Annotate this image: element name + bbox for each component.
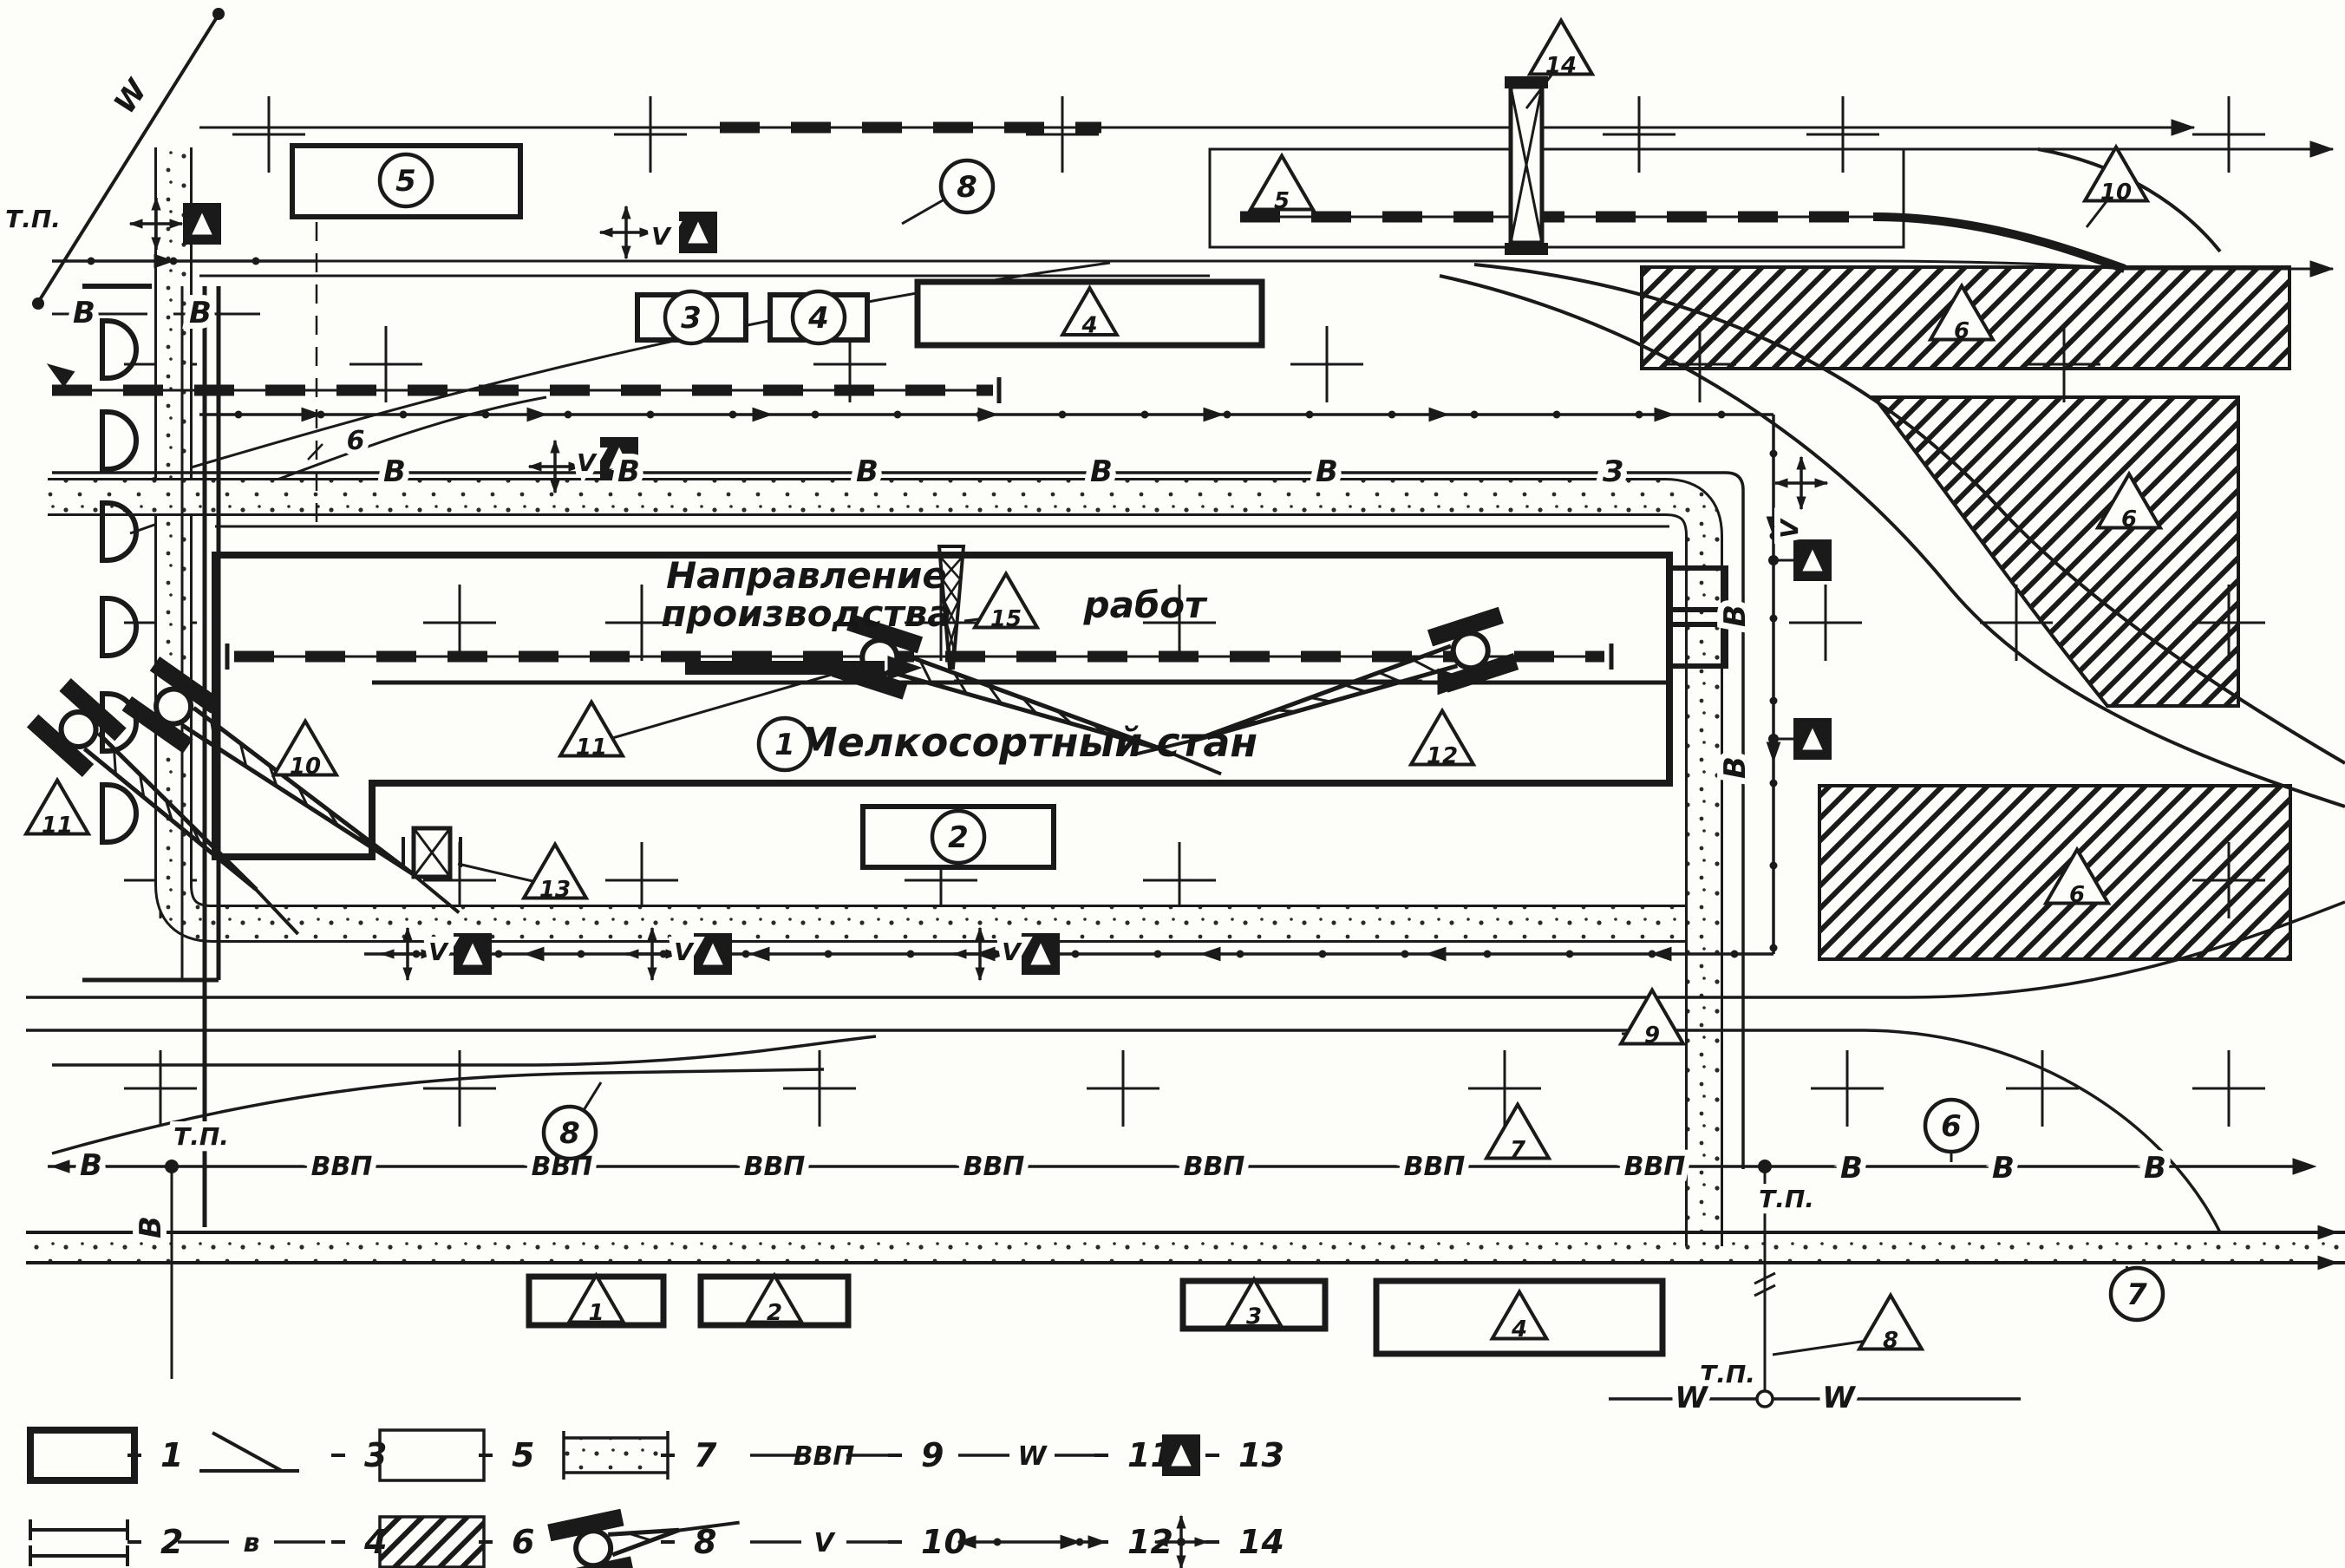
utility-line-label: В xyxy=(1316,454,1338,489)
utility-line-label: W xyxy=(1675,1381,1708,1415)
utility-line-label: ВВП xyxy=(1404,1152,1466,1182)
boxed-callout-number: 3 xyxy=(1246,1304,1262,1330)
crawler-crane-icon xyxy=(832,614,1233,800)
utility-line-label: В xyxy=(80,1148,102,1183)
line-arrow-icon xyxy=(1061,1535,1080,1548)
legend-building-thin-icon xyxy=(380,1430,484,1480)
legend-road-icon xyxy=(564,1438,668,1473)
utility-line-label: V xyxy=(577,448,598,477)
utility-line-label: В xyxy=(2144,1151,2166,1186)
circle-callout-number: 3 xyxy=(681,301,702,336)
axis-transfer-icon xyxy=(1177,1538,1186,1546)
line-dot-icon xyxy=(1401,951,1409,958)
line-dot-icon xyxy=(1718,411,1726,419)
triangle-callout-number: 13 xyxy=(539,877,571,903)
line-dot-icon xyxy=(1566,951,1574,958)
arrow-head-icon xyxy=(2293,1159,2316,1174)
line-dot-icon xyxy=(1770,780,1778,787)
line-dot-icon xyxy=(1770,862,1778,870)
utility-line-label: ВВП xyxy=(1184,1152,1245,1182)
legend-number: 9 xyxy=(921,1436,944,1474)
left-complex-bay xyxy=(102,412,136,469)
line-arrow-icon xyxy=(978,408,997,421)
direction-label: работ xyxy=(1083,584,1209,626)
utility-line-label: V xyxy=(1002,938,1022,966)
utility-line-label: 6 xyxy=(347,426,365,456)
axis-transfer-icon xyxy=(976,968,984,980)
line-node-dot xyxy=(1768,555,1779,565)
stroygenplan-drawing: НаправлениепроизводстваработМелкосортный… xyxy=(0,0,2345,1568)
line-node-dot xyxy=(1768,734,1779,744)
line-dot-icon xyxy=(1319,951,1327,958)
legend-number: 13 xyxy=(1238,1436,1284,1474)
line-dot-icon xyxy=(1636,411,1643,419)
line-arrow-icon xyxy=(1767,742,1780,761)
line-node-circle xyxy=(1757,1391,1773,1407)
hatched-building xyxy=(1819,786,2290,959)
utility-line-label: Т.П. xyxy=(1759,1185,1814,1213)
axis-transfer-icon xyxy=(954,950,966,958)
utility-line-label: Т.П. xyxy=(5,205,61,233)
utility-line-label: Т.П. xyxy=(173,1122,229,1151)
line-dot-icon xyxy=(565,411,572,419)
utility-line-label: W xyxy=(108,73,155,121)
left-complex-bay xyxy=(102,321,136,378)
legend-line-letter: ВВП xyxy=(794,1441,855,1472)
gantry-icon xyxy=(1505,243,1548,255)
line-dot-icon xyxy=(742,951,750,958)
line-dot-icon xyxy=(1731,951,1739,958)
road-exit-arrow xyxy=(42,356,75,386)
road-stipple xyxy=(26,1235,2345,1261)
line-dot-icon xyxy=(1141,411,1149,419)
line-dot-icon xyxy=(894,411,902,419)
legend-number: 3 xyxy=(364,1436,387,1474)
axis-transfer-icon xyxy=(1775,479,1787,487)
utility-line-label: З xyxy=(1602,454,1623,489)
mill-name-label: Мелкосортный стан xyxy=(798,719,1257,766)
axis-transfer-icon xyxy=(648,968,656,980)
road-line xyxy=(52,1069,824,1153)
line-arrow-icon xyxy=(527,408,546,421)
utility-line-label: W xyxy=(1822,1381,1856,1415)
axis-transfer-icon xyxy=(640,228,652,237)
line-arrow-icon xyxy=(1652,947,1671,960)
legend-line-letter: W xyxy=(1017,1441,1048,1472)
line-arrow-icon xyxy=(1429,408,1448,421)
axis-transfer-icon xyxy=(1177,1556,1186,1568)
utility-line-label: В xyxy=(1840,1151,1863,1186)
line-dot-icon xyxy=(578,951,585,958)
axis-transfer-icon xyxy=(622,206,630,219)
triangle-callout-number: 10 xyxy=(290,754,321,780)
utility-line-label: V xyxy=(674,938,695,966)
line-dot-icon xyxy=(1484,951,1492,958)
line-dot-icon xyxy=(1154,951,1162,958)
line-dot-icon xyxy=(1388,411,1396,419)
axis-transfer-icon xyxy=(1195,1538,1207,1546)
axis-transfer-icon xyxy=(529,462,541,471)
utility-line-label: V xyxy=(651,222,672,251)
line-dot-icon xyxy=(1224,411,1231,419)
line-arrow-icon xyxy=(750,947,769,960)
line-arrow-icon xyxy=(1201,947,1220,960)
line-dot-icon xyxy=(88,258,95,265)
line-node-dot xyxy=(212,8,225,20)
legend-number: 5 xyxy=(512,1436,534,1474)
axis-transfer-icon xyxy=(130,219,142,228)
arrow-head-icon xyxy=(52,1160,69,1173)
left-complex-bay xyxy=(102,598,136,656)
line-dot-icon xyxy=(400,411,408,419)
line-arrow-icon xyxy=(753,408,772,421)
boxed-callout-number: 4 xyxy=(1081,313,1097,339)
temporary-structure-outline xyxy=(1210,149,1904,247)
utility-line-label: В xyxy=(73,296,95,330)
circle-callout-number: 4 xyxy=(807,301,829,336)
utility-line-label: В xyxy=(189,296,212,330)
circle-callout-number: 6 xyxy=(1941,1109,1962,1144)
axis-transfer-icon xyxy=(1177,1516,1186,1528)
line-arrow-icon xyxy=(1204,408,1223,421)
axis-transfer-icon xyxy=(600,228,612,237)
callout-leader xyxy=(308,444,323,460)
triangle-callout-number: 8 xyxy=(1883,1328,1898,1354)
line-arrow-icon xyxy=(302,408,321,421)
line-dot-icon xyxy=(1306,411,1314,419)
axis-transfer-icon xyxy=(626,950,638,958)
triangle-callout-number: 9 xyxy=(1644,1022,1660,1049)
utility-line-label: V xyxy=(1775,518,1804,539)
arrow-head-icon xyxy=(2310,141,2333,157)
line-dot-icon xyxy=(252,258,260,265)
line-dot-icon xyxy=(1770,450,1778,458)
line-dot-icon xyxy=(647,411,655,419)
utility-line-label: В xyxy=(383,454,406,489)
utility-line-label: В xyxy=(1090,454,1113,489)
circle-callout-number: 8 xyxy=(559,1116,580,1151)
triangle-callout-number: 14 xyxy=(1545,53,1577,79)
line-dot-icon xyxy=(825,951,833,958)
line-dot-icon xyxy=(482,411,490,419)
circle-callout-number: 8 xyxy=(957,170,977,205)
legend-number: 1 xyxy=(160,1436,183,1474)
utility-line-label: Т.П. xyxy=(1700,1360,1755,1388)
circle-callout-number: 5 xyxy=(395,164,416,199)
line-dot-icon xyxy=(1770,697,1778,705)
utility-line-label: V xyxy=(428,938,449,966)
triangle-callout-number: 10 xyxy=(2100,180,2132,206)
legend-number: 7 xyxy=(694,1436,717,1474)
direction-label: производства xyxy=(661,592,951,635)
direction-label: Направление xyxy=(666,554,947,597)
circle-callout-number: 7 xyxy=(2126,1277,2147,1312)
triangle-callout-number: 12 xyxy=(1427,743,1458,769)
line-dot-icon xyxy=(1770,615,1778,623)
triangle-callout-number: 7 xyxy=(1510,1137,1526,1163)
legend-hatched-icon xyxy=(380,1517,484,1567)
water-line-w xyxy=(35,10,221,308)
axis-transfer-icon xyxy=(1797,457,1806,469)
triangle-callout-number: 15 xyxy=(990,606,1022,632)
axis-transfer-icon xyxy=(1797,497,1806,509)
line-dot-icon xyxy=(1237,951,1244,958)
triangle-callout-number: 6 xyxy=(2121,506,2137,532)
triangle-callout-number: 11 xyxy=(42,813,73,839)
line-dot-icon xyxy=(907,951,915,958)
arrow-head-icon xyxy=(2172,120,2194,135)
scanned-drawing-page: НаправлениепроизводстваработМелкосортный… xyxy=(0,0,2345,1568)
axis-transfer-icon xyxy=(622,246,630,258)
line-dot-icon xyxy=(1072,951,1080,958)
circle-callout-number: 1 xyxy=(774,728,795,762)
line-dot-icon xyxy=(812,411,820,419)
legend-building-bold-icon xyxy=(30,1430,134,1480)
triangle-callout-number: 6 xyxy=(1954,318,1969,344)
axis-transfer-icon xyxy=(403,968,412,980)
boxed-callout-number: 4 xyxy=(1511,1316,1527,1343)
road-line xyxy=(52,1036,876,1065)
legend-number: 14 xyxy=(1238,1523,1284,1561)
legend-line-letter: V xyxy=(813,1528,836,1558)
boxed-callout-number: 1 xyxy=(588,1300,604,1326)
axis-transfer-icon xyxy=(551,441,559,453)
axis-transfer-icon xyxy=(1815,479,1827,487)
utility-line-label: ВВП xyxy=(1624,1152,1686,1182)
line-dot-icon xyxy=(994,1539,1002,1546)
triangle-callout-number: 5 xyxy=(1274,188,1290,214)
line-dot-icon xyxy=(1059,411,1067,419)
line-arrow-icon xyxy=(525,947,544,960)
line-dot-icon xyxy=(495,951,503,958)
utility-line-label: В xyxy=(1992,1151,2015,1186)
line-dot-icon xyxy=(1471,411,1479,419)
line-arrow-icon xyxy=(1427,947,1446,960)
triangle-callout-number: 6 xyxy=(2069,882,2085,908)
utility-line-label: В xyxy=(617,454,640,489)
line-dot-icon xyxy=(729,411,737,419)
circle-callout-number: 2 xyxy=(948,820,969,855)
line-node-dot xyxy=(32,297,44,310)
utility-line-label: В xyxy=(1718,604,1753,627)
legend-number: 6 xyxy=(512,1523,534,1561)
utility-line-label: ВВП xyxy=(744,1152,806,1182)
utility-line-label: В xyxy=(856,454,879,489)
axis-transfer-icon xyxy=(382,950,394,958)
line-dot-icon xyxy=(235,411,243,419)
boxed-callout-number: 2 xyxy=(767,1300,782,1326)
line-dot-icon xyxy=(1553,411,1561,419)
triangle-callout-number: 11 xyxy=(576,735,607,761)
legend-number: 8 xyxy=(694,1523,716,1561)
utility-line-label: ВВП xyxy=(311,1152,373,1182)
utility-line-label: В xyxy=(1718,756,1753,779)
legend-line-letter: в xyxy=(244,1528,260,1558)
utility-line-label: ВВП xyxy=(963,1152,1025,1182)
utility-line-label: В xyxy=(134,1216,168,1238)
line-arrow-icon xyxy=(1655,408,1674,421)
hatched-building xyxy=(1874,397,2238,706)
arrow-head-icon xyxy=(2310,261,2333,277)
legend-turnout-icon xyxy=(212,1433,282,1471)
line-dot-icon xyxy=(1770,944,1778,952)
left-complex-bay xyxy=(102,785,136,842)
